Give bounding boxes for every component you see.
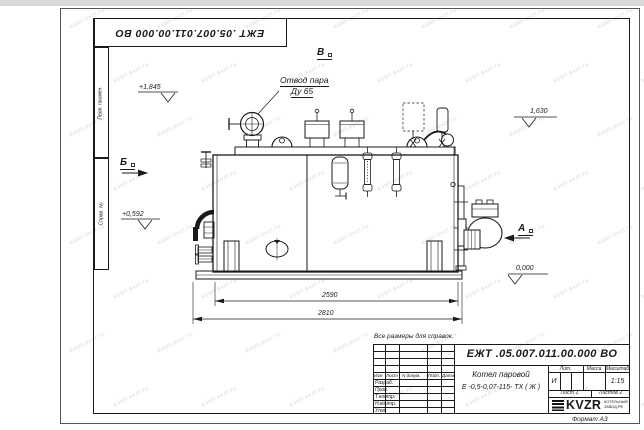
tb-row-tkontr: Т.контр. [375,395,395,400]
elevation-0592: +0,592 [122,211,144,218]
left-fittings [193,152,214,264]
dashed-box [403,103,424,147]
top-elbow-pipe [424,132,454,146]
designation: ЕЖТ .05.007.011.00.000 ВО [456,346,628,363]
dim-2810: 2810 [318,310,334,317]
steam-outlet-label-line2: Ду 65 [291,87,313,98]
drawing-sheet: kotel-kvzr.rukotel-kvzr.rukotel-kvzr.ruk… [0,0,644,430]
lit-value: И [548,373,560,390]
tb-line [571,372,572,390]
company-line2: ЗАВОД.РФ [604,406,623,410]
scale-header: Масштаб [605,366,630,372]
boiler-body [213,147,458,272]
sheets-total: Листов 2 [591,390,630,397]
water-vessel [332,157,348,200]
tb-line [373,358,454,359]
tb-row-razrab: Разраб. [375,381,393,386]
product-name-line1: Котел паровой [455,370,547,380]
view-b-subscript [131,163,135,167]
view-v-subscript [328,53,332,57]
kvzr-logo-text: KVZR [566,399,601,412]
elevation-1845: +1,845 [139,84,161,91]
tb-header-podp: Подп. [428,374,440,379]
dimension-2810-lines [193,282,462,324]
burner [458,200,502,249]
tb-line [373,351,454,352]
tb-header-izm: Изм [374,374,383,379]
steam-valve [229,113,264,148]
scale-value: 1:15 [605,373,630,390]
manhole [266,238,288,260]
steam-outlet-leader [258,91,279,114]
product-name-line2: Е -0,5-0,07-115- ТХ ( Ж ) [455,382,547,392]
elevation-1630: 1,630 [530,108,548,115]
elevation-0000: 0,000 [516,265,534,272]
dim-2590: 2590 [322,292,338,299]
format-label: Формат А3 [572,417,608,424]
tb-line [560,372,561,390]
tb-row-utv: Утв. [375,409,386,414]
view-a-subscript [529,229,533,233]
tb-row-prov: Пров. [375,388,388,393]
kvzr-logo-icon [552,400,564,411]
sight-cylinder [437,108,448,147]
lit-header: Лит. [548,366,583,372]
tb-header-data: Дата [442,374,454,379]
tb-row-nkontr: Н.контр. [375,402,396,407]
tb-header-ndoc: N докум. [402,374,421,379]
support-legs [224,241,442,271]
sheet-number: Лист 1 [548,390,591,397]
elevation-symbols [121,92,557,284]
instrument-boxes [305,109,364,147]
tb-header-list: Лист [386,374,398,379]
reference-note: Все размеры для справок. [374,334,454,341]
mass-header: Масса [583,366,605,372]
steam-outlet-label-line1: Отвод пара [280,76,329,87]
